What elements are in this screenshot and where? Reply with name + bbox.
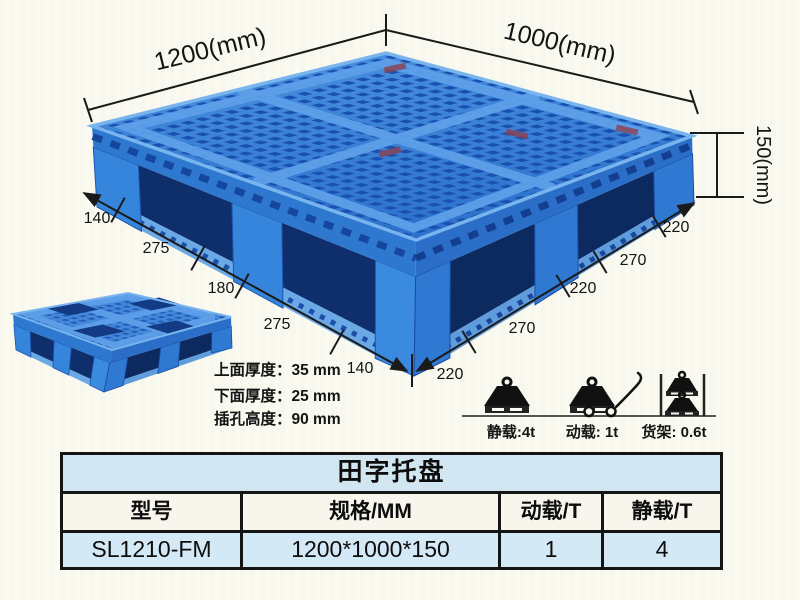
col-header-spec: 规格/MM — [242, 493, 500, 532]
pallet-spec-sheet: 1200(mm) 1000(mm) 150(mm) 140 275 180 27… — [0, 0, 800, 600]
dynamic-load-icon — [569, 373, 641, 416]
spec-table: 田字托盘 型号 规格/MM 动载/T 静载/T SL1210-FM 1200*1… — [60, 452, 723, 570]
dynamic-load-label: 动载: 1t — [566, 423, 619, 441]
fork-hole-height-note: 插孔高度：90 mm — [214, 409, 341, 428]
col-header-model: 型号 — [62, 493, 242, 532]
pallet-diagram: 1200(mm) 1000(mm) 150(mm) 140 275 180 27… — [0, 0, 800, 452]
thickness-notes: 上面厚度：35 mm 下面厚度：25 mm 插孔高度：90 mm — [214, 360, 341, 428]
top-thickness-note: 上面厚度：35 mm — [214, 360, 341, 379]
svg-text:140: 140 — [347, 360, 374, 377]
cell-static-load: 4 — [603, 532, 722, 569]
load-rating-icons: 静载:4t 动载: 1t 货架: 0.6t — [462, 372, 716, 441]
width-dimension-label: 1200(mm) — [151, 22, 268, 76]
dimension-150 — [690, 133, 744, 197]
svg-text:220: 220 — [570, 280, 597, 297]
cell-dynamic-load: 1 — [500, 532, 603, 569]
col-header-static-load: 静载/T — [603, 493, 722, 532]
rack-load-icon — [661, 372, 704, 416]
static-load-label: 静载:4t — [487, 423, 535, 441]
svg-text:220: 220 — [437, 366, 464, 383]
svg-text:275: 275 — [264, 316, 291, 333]
table-title: 田字托盘 — [62, 454, 722, 493]
col-header-dynamic-load: 动载/T — [500, 493, 603, 532]
svg-text:275: 275 — [143, 240, 170, 257]
static-load-icon — [484, 378, 530, 413]
height-dimension-label: 150(mm) — [752, 125, 774, 205]
svg-text:180: 180 — [208, 280, 235, 297]
bottom-thickness-note: 下面厚度：25 mm — [214, 386, 341, 405]
svg-text:220: 220 — [663, 219, 690, 236]
cell-model: SL1210-FM — [62, 532, 242, 569]
table-title-row: 田字托盘 — [62, 454, 722, 493]
svg-text:140: 140 — [84, 210, 111, 227]
small-pallet-illustration — [13, 293, 232, 392]
svg-text:270: 270 — [509, 320, 536, 337]
rack-load-label: 货架: 0.6t — [641, 423, 706, 441]
table-data-row: SL1210-FM 1200*1000*150 1 4 — [62, 532, 722, 569]
table-header-row: 型号 规格/MM 动载/T 静载/T — [62, 493, 722, 532]
svg-text:270: 270 — [620, 252, 647, 269]
cell-spec: 1200*1000*150 — [242, 532, 500, 569]
